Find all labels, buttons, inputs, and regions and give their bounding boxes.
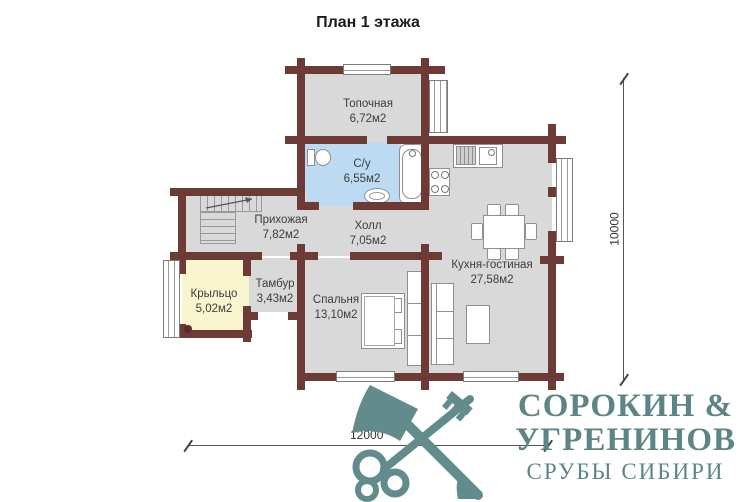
window-bay xyxy=(429,80,448,133)
wall-cross-stub xyxy=(285,66,295,74)
floor-plan-page: План 1 этажа xyxy=(0,0,753,502)
staircase xyxy=(200,192,262,244)
logo-line1: СОРОКИН & xyxy=(498,389,753,423)
wall-segment xyxy=(421,244,429,390)
toilet-icon xyxy=(315,149,331,166)
coffee-table xyxy=(466,305,490,344)
sofa xyxy=(431,283,454,365)
wall-segment xyxy=(170,330,252,338)
wall-segment xyxy=(548,124,556,163)
logo-line3: СРУБЫ СИБИРИ xyxy=(498,459,753,485)
window xyxy=(343,64,391,75)
wall-segment xyxy=(548,231,556,390)
room-label-kitchen-living: Кухня-гостиная27,58м2 xyxy=(451,258,532,288)
wall-cross-stub xyxy=(540,256,564,264)
room-label-hallway: Прихожая7,82м2 xyxy=(254,213,307,243)
vestibule-window-gap xyxy=(258,312,288,320)
stove-burner xyxy=(441,171,449,179)
logo-line2: УГРЕНИНОВ xyxy=(498,423,753,457)
dimension-line-right xyxy=(623,78,624,380)
room-label-porch: Крыльцо5,02м2 xyxy=(191,287,238,317)
wall-segment xyxy=(297,373,338,381)
stove-burner xyxy=(441,185,449,193)
wall-segment xyxy=(299,202,319,210)
stove-burner xyxy=(431,171,439,179)
room-label-bathroom: С/у6,55м2 xyxy=(344,157,381,187)
stairs-direction-arrow xyxy=(200,192,262,244)
wall-segment xyxy=(421,58,429,210)
dining-chair xyxy=(471,223,483,240)
kitchen-drainer xyxy=(456,146,476,165)
wall-segment xyxy=(243,252,251,276)
porch-window-bay xyxy=(163,260,180,338)
page-title: План 1 этажа xyxy=(316,14,420,32)
wall-cross-stub xyxy=(435,66,445,74)
window xyxy=(463,371,519,382)
dining-chair xyxy=(525,223,537,240)
axe-and-key-icon xyxy=(340,383,520,502)
wall-segment xyxy=(517,373,564,381)
stove-burner xyxy=(431,185,439,193)
wall-segment xyxy=(548,187,556,197)
window xyxy=(336,371,395,382)
wall-segment xyxy=(387,136,566,144)
pillow xyxy=(394,329,402,344)
dimension-value-right: 10000 xyxy=(608,212,622,245)
wall-segment xyxy=(353,202,429,210)
double-bed xyxy=(361,293,405,349)
bathtub-faucet xyxy=(409,150,416,157)
company-logo: СОРОКИН & УГРЕНИНОВ СРУБЫ СИБИРИ xyxy=(340,383,753,502)
kitchen-sink xyxy=(479,147,497,165)
logo-text: СОРОКИН & УГРЕНИНОВ СРУБЫ СИБИРИ xyxy=(498,389,753,485)
pillow xyxy=(394,298,402,313)
room-label-bedroom: Спальня13,10м2 xyxy=(313,293,359,323)
room-label-hall: Холл7,05м2 xyxy=(350,219,387,249)
room-label-boiler: Топочная6,72м2 xyxy=(343,97,393,127)
door-pivot-dot xyxy=(184,325,192,333)
toilet-tank xyxy=(307,149,315,166)
dining-table xyxy=(483,215,525,249)
wall-segment xyxy=(393,373,465,381)
room-label-vestibule: Тамбур3,43м2 xyxy=(255,277,294,307)
wall-segment xyxy=(285,136,367,144)
window-bay xyxy=(556,158,573,242)
wall-segment xyxy=(170,188,305,196)
dimension-tick xyxy=(619,73,628,85)
